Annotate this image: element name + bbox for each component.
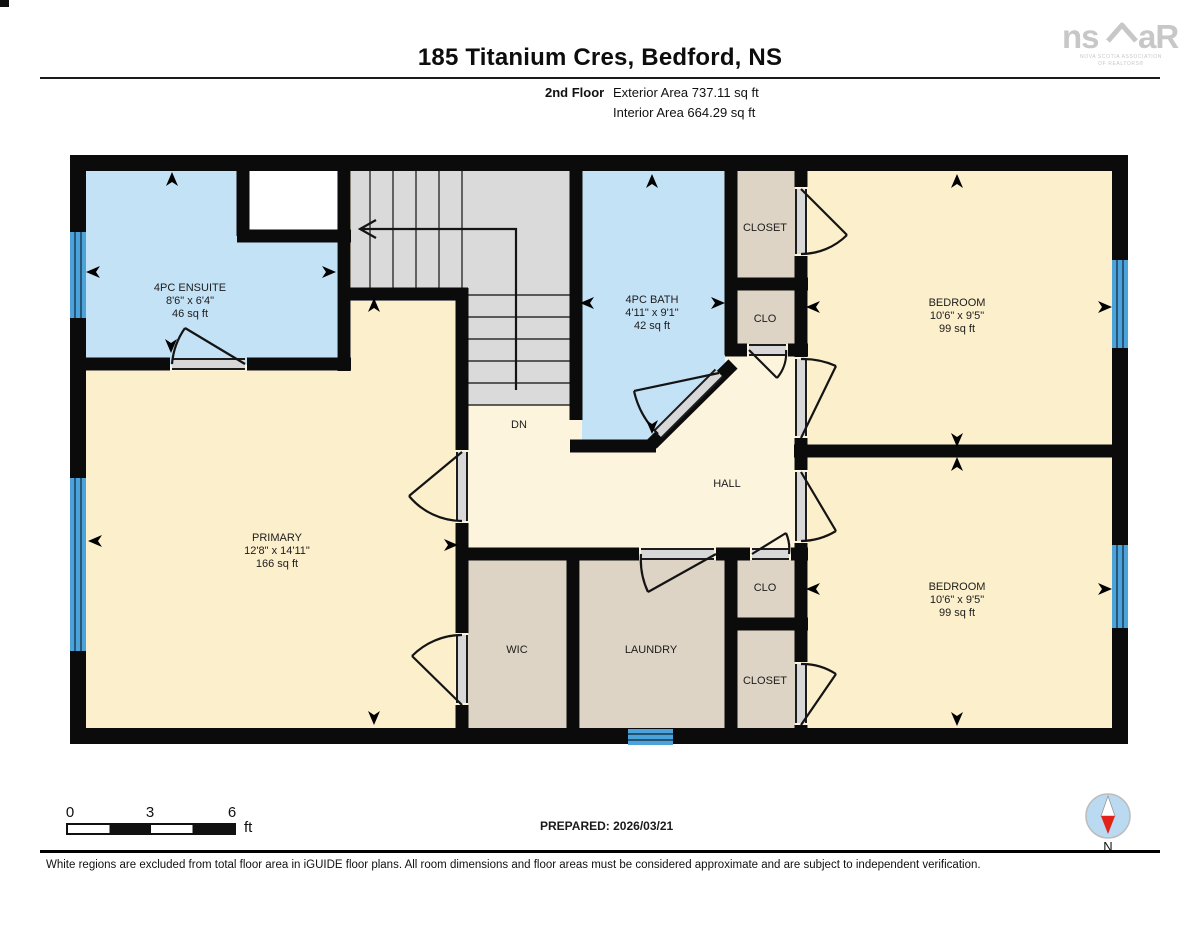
clo-top-label: CLO bbox=[754, 313, 777, 325]
primary-name: PRIMARY bbox=[252, 532, 303, 544]
window bbox=[70, 478, 86, 651]
scale-unit: ft bbox=[244, 819, 252, 836]
window bbox=[1112, 545, 1128, 628]
bedroom-top-area: 99 sq ft bbox=[939, 323, 975, 335]
footer-divider bbox=[40, 850, 1160, 853]
primary-area: 166 sq ft bbox=[256, 558, 298, 570]
clo-mid-label: CLO bbox=[754, 582, 777, 594]
disclaimer-text: White regions are excluded from total fl… bbox=[46, 859, 981, 871]
scale-end: 6 bbox=[228, 804, 236, 821]
bedroom-bottom-dims: 10'6" x 9'5" bbox=[930, 594, 984, 606]
stairs-dn-label: DN bbox=[511, 419, 527, 431]
scale-mid: 3 bbox=[146, 804, 154, 821]
window bbox=[628, 729, 673, 745]
bedroom-top-name: BEDROOM bbox=[929, 297, 986, 309]
bedroom-top-dims: 10'6" x 9'5" bbox=[930, 310, 984, 322]
scale-start: 0 bbox=[66, 804, 74, 821]
floor-plan-drawing: 4PC ENSUITE 8'6" x 6'4" 46 sq ft 4PC BAT… bbox=[0, 0, 1200, 927]
laundry-label: LAUNDRY bbox=[625, 644, 678, 656]
bath-area: 42 sq ft bbox=[634, 320, 670, 332]
hall-label: HALL bbox=[713, 478, 741, 490]
bedroom-bottom-name: BEDROOM bbox=[929, 581, 986, 593]
excluded-void-fill bbox=[249, 170, 337, 230]
prepared-date: PREPARED: 2026/03/21 bbox=[540, 819, 673, 833]
window bbox=[1112, 260, 1128, 348]
wic-label: WIC bbox=[506, 644, 527, 656]
bath-name: 4PC BATH bbox=[626, 294, 679, 306]
bedroom-bottom-area: 99 sq ft bbox=[939, 607, 975, 619]
ensuite-area: 46 sq ft bbox=[172, 308, 208, 320]
ensuite-dims: 8'6" x 6'4" bbox=[166, 295, 214, 307]
ensuite-name: 4PC ENSUITE bbox=[154, 282, 226, 294]
scale-bar: 0 3 6 ft bbox=[64, 804, 264, 840]
closet-top-label: CLOSET bbox=[743, 222, 787, 234]
compass: N bbox=[1083, 791, 1133, 855]
closet-bottom-label: CLOSET bbox=[743, 675, 787, 687]
primary-dims: 12'8" x 14'11" bbox=[244, 545, 310, 557]
scale-bar-segments bbox=[66, 823, 236, 835]
window bbox=[70, 232, 86, 318]
bath-dims: 4'11" x 9'1" bbox=[625, 307, 678, 319]
floor-plan-page: 185 Titanium Cres, Bedford, NS 2nd Floor… bbox=[0, 0, 1200, 927]
